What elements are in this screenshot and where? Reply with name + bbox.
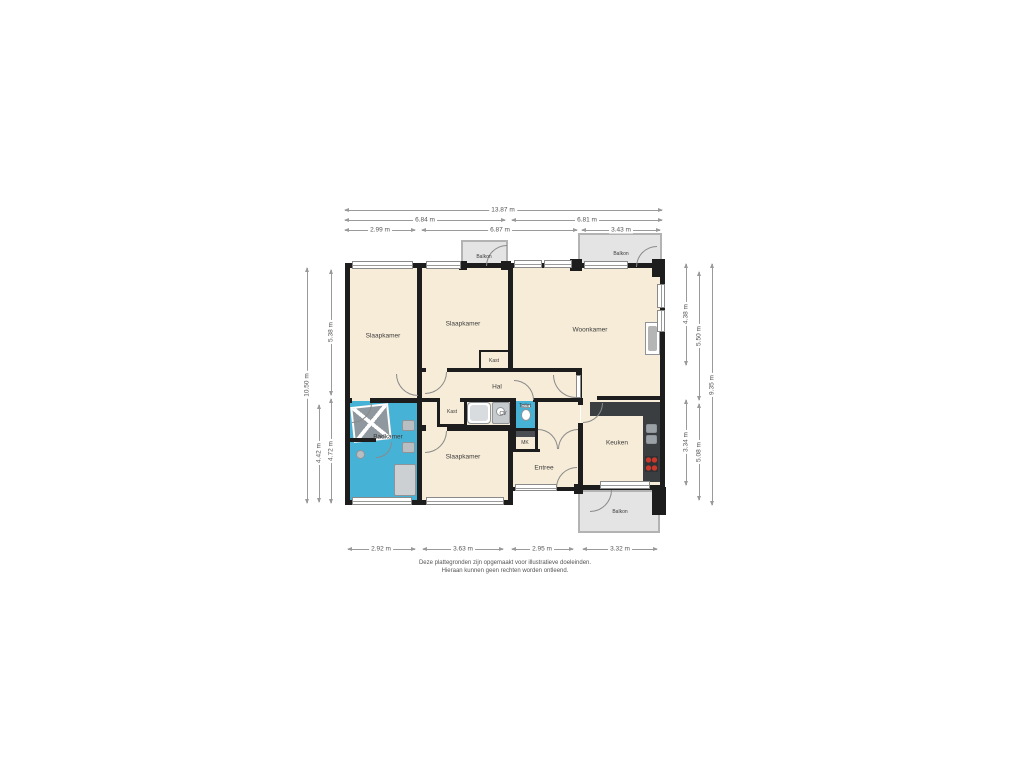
window	[657, 284, 665, 308]
wall	[345, 263, 350, 505]
wall	[370, 398, 422, 403]
disclaimer-line-2: Hieraan kunnen geen rechten worden ontle…	[442, 567, 569, 575]
kitchen-sink	[646, 424, 657, 433]
wall	[479, 350, 481, 368]
dim-label: 6.87 m	[488, 227, 512, 234]
window	[544, 260, 572, 268]
window	[600, 481, 650, 489]
wall	[516, 428, 535, 431]
label-balkon-large: Balkon	[613, 251, 628, 257]
wall	[533, 398, 578, 402]
window	[584, 261, 628, 269]
washer	[394, 464, 416, 496]
kitchen-sink-2	[646, 435, 657, 444]
window	[515, 484, 557, 491]
wall	[350, 438, 376, 442]
label-badkamer: Badkamer	[373, 434, 403, 441]
label-cv: CV	[500, 411, 507, 417]
disclaimer-line-1: Deze plattegronden zijn opgemaakt voor i…	[419, 559, 591, 567]
dim-label: 6.84 m	[413, 217, 437, 224]
label-toilet: Toilet	[519, 403, 531, 409]
wall	[652, 487, 666, 515]
door-leaf-woonkamer	[576, 375, 581, 398]
wall	[508, 263, 513, 372]
dim-label: 5.08 m	[696, 440, 703, 464]
dim-label: 4.72 m	[328, 439, 335, 463]
wall	[417, 398, 422, 500]
toilet-bowl	[521, 409, 531, 421]
dim-label: 3.43 m	[609, 227, 633, 234]
window	[514, 260, 542, 268]
wall	[460, 398, 513, 402]
wall	[479, 350, 508, 352]
dim-label: 6.81 m	[575, 217, 599, 224]
meter-cabinet	[516, 431, 535, 437]
washbasin-1	[402, 420, 415, 431]
dim-label-total-height-left: 10.50 m	[304, 371, 311, 399]
wall	[447, 425, 513, 431]
wall	[508, 368, 578, 372]
woonkamer-niche-inner	[648, 326, 657, 351]
label-balkon-bottom: Balkon	[612, 509, 627, 515]
label-kast-slaapkamer: Kast	[489, 358, 499, 364]
dim-label: 3.32 m	[608, 546, 632, 553]
wall	[464, 400, 467, 427]
label-slaapkamer-2: Slaapkamer	[446, 321, 481, 328]
dim-label: 2.99 m	[368, 227, 392, 234]
wall	[597, 396, 660, 400]
wall	[578, 423, 583, 487]
window	[352, 261, 413, 269]
dim-label: 3.34 m	[683, 430, 690, 454]
label-slaapkamer-1: Slaapkamer	[366, 333, 401, 340]
label-kast-hal: Kast	[447, 409, 457, 415]
window	[426, 261, 461, 269]
dim-label-total-width: 13.87 m	[489, 207, 517, 214]
label-keuken: Keuken	[606, 440, 628, 447]
label-hal: Hal	[492, 384, 502, 391]
label-mk: MK	[521, 440, 529, 446]
wall	[513, 398, 516, 452]
label-balkon-small: Balkon	[476, 254, 491, 260]
dim-label: 4.42 m	[316, 441, 323, 465]
window	[657, 310, 665, 332]
window	[352, 497, 412, 505]
dim-label: 5.38 m	[328, 320, 335, 344]
bathroom-toilet	[356, 450, 365, 459]
wall	[345, 398, 352, 403]
washbasin-2	[402, 442, 415, 453]
label-slaapkamer-3: Slaapkamer	[446, 454, 481, 461]
dim-label-total-height-right: 9.35 m	[709, 373, 716, 397]
window	[426, 497, 504, 505]
wall	[447, 368, 508, 372]
cv-tub-inner	[470, 405, 488, 421]
floorplan-canvas: Slaapkamer Slaapkamer Woonkamer Hal Kast…	[0, 0, 1024, 768]
dim-label: 2.95 m	[530, 546, 554, 553]
label-woonkamer: Woonkamer	[573, 327, 608, 334]
label-entree: Entree	[534, 465, 553, 472]
dim-label: 4.38 m	[683, 302, 690, 326]
dim-label: 3.63 m	[451, 546, 475, 553]
wall	[437, 400, 440, 427]
wall	[513, 449, 540, 452]
dim-label: 5.50 m	[696, 324, 703, 348]
kitchen-cooktop	[645, 456, 658, 472]
dim-label: 2.92 m	[369, 546, 393, 553]
